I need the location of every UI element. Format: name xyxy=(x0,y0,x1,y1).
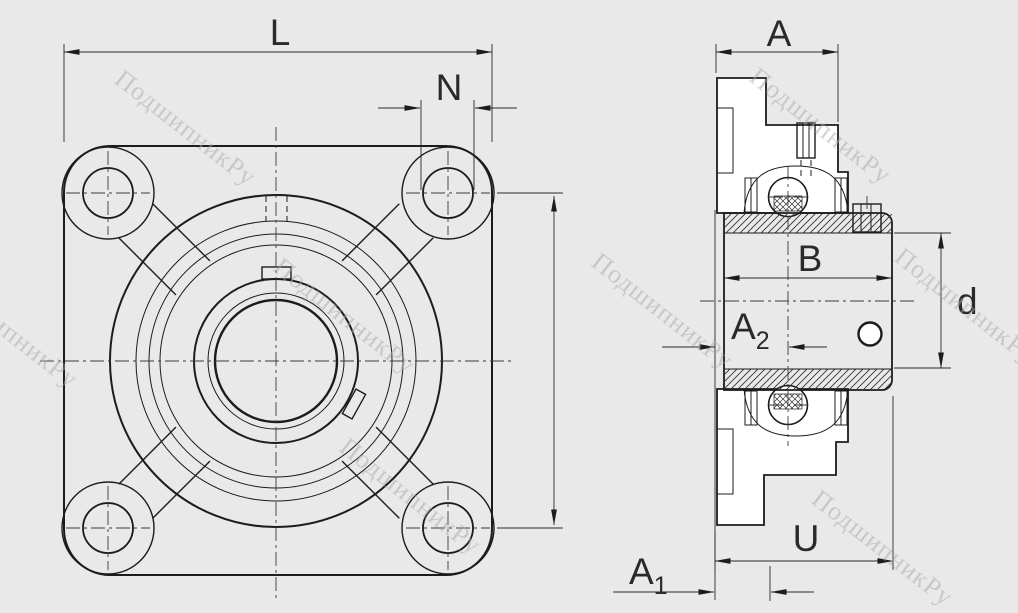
dimension-B-label: B xyxy=(798,238,823,279)
dimension-U-label: U xyxy=(793,518,820,559)
dimension-A-label: A xyxy=(767,13,792,54)
dimension-N-label: N xyxy=(436,67,463,108)
setscrew-hole-far-side xyxy=(859,323,882,346)
dimension-L-label: L xyxy=(270,12,291,53)
technical-drawing-page: L N A B d A2 U xyxy=(0,0,1018,613)
bearing-drawing-canvas: L N A B d A2 U xyxy=(0,0,1018,613)
